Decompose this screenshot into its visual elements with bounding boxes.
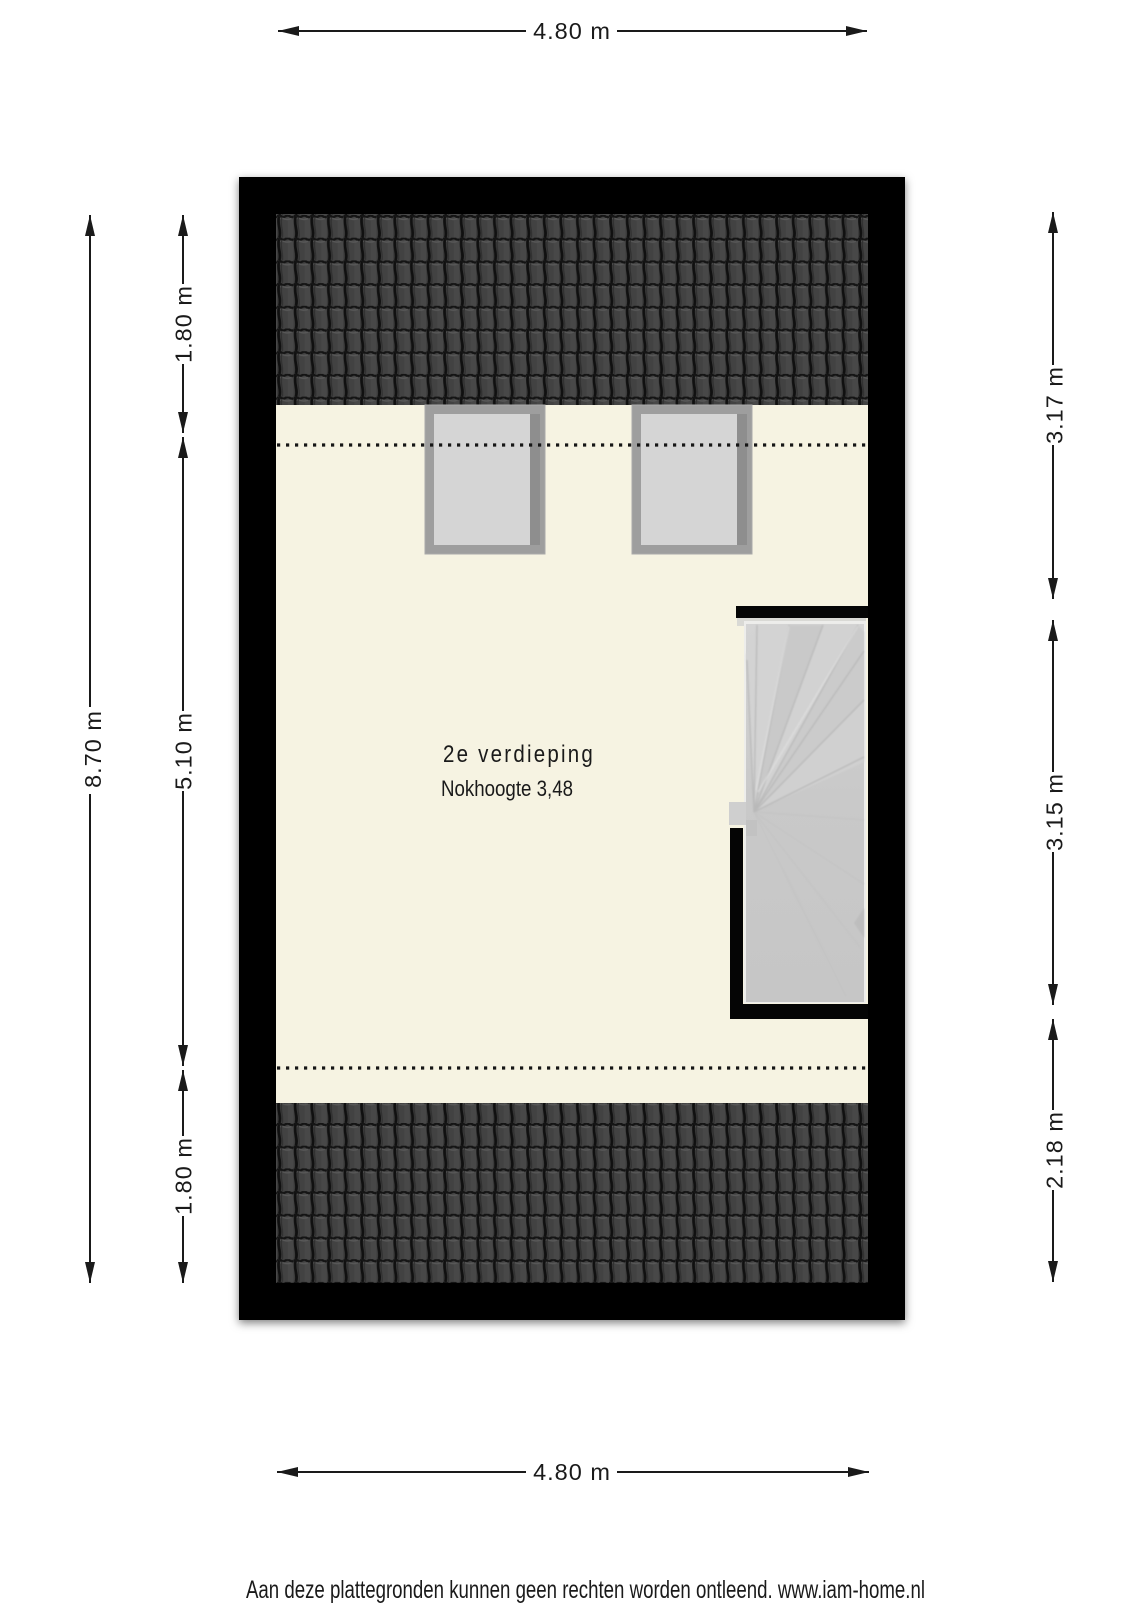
svg-text:3.17 m: 3.17 m bbox=[1042, 366, 1068, 444]
svg-text:5.10 m: 5.10 m bbox=[171, 712, 197, 790]
svg-text:1.80 m: 1.80 m bbox=[171, 1137, 197, 1215]
svg-text:4.80 m: 4.80 m bbox=[533, 18, 611, 44]
svg-text:3.15 m: 3.15 m bbox=[1042, 773, 1068, 851]
svg-text:Nokhoogte 3,48: Nokhoogte 3,48 bbox=[441, 776, 573, 801]
svg-text:1.80 m: 1.80 m bbox=[171, 285, 197, 363]
svg-text:2.18 m: 2.18 m bbox=[1042, 1111, 1068, 1189]
svg-text:8.70 m: 8.70 m bbox=[80, 710, 106, 788]
svg-text:2e verdieping: 2e verdieping bbox=[443, 741, 595, 768]
svg-text:4.80 m: 4.80 m bbox=[533, 1459, 611, 1485]
svg-text:Aan deze plattegronden kunnen: Aan deze plattegronden kunnen geen recht… bbox=[246, 1576, 925, 1604]
